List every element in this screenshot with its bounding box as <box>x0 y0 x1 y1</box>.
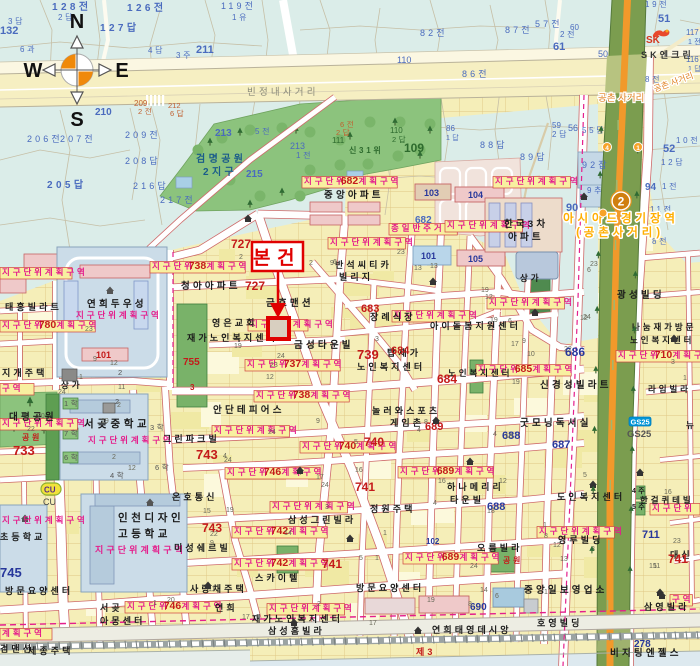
svg-text:타운빌: 타운빌 <box>450 494 484 505</box>
svg-text:12: 12 <box>266 374 274 381</box>
svg-text:고등학교: 고등학교 <box>118 527 171 540</box>
svg-text:3: 3 <box>671 359 675 366</box>
svg-text:하나메리리: 하나메리리 <box>447 481 504 492</box>
svg-text:755: 755 <box>183 357 200 368</box>
svg-text:52: 52 <box>663 143 675 155</box>
svg-text:6학: 6학 <box>64 452 80 462</box>
svg-text:6: 6 <box>587 267 591 274</box>
svg-text:3: 3 <box>375 336 379 343</box>
svg-text:2: 2 <box>317 601 321 608</box>
svg-text:19: 19 <box>481 287 489 294</box>
svg-text:지구단위계획구역: 지구단위계획구역 <box>76 310 162 320</box>
svg-text:노인복지센터: 노인복지센터 <box>630 335 694 345</box>
svg-text:739: 739 <box>357 347 379 362</box>
svg-text:청아아파트: 청아아파트 <box>181 280 241 292</box>
svg-text:11: 11 <box>118 384 125 391</box>
svg-text:서곶: 서곶 <box>100 602 123 613</box>
svg-text:61: 61 <box>553 41 565 53</box>
svg-text:계획구역: 계획구역 <box>460 552 503 562</box>
svg-text:13: 13 <box>560 556 568 563</box>
svg-text:세종주택: 세종주택 <box>28 645 74 656</box>
svg-text:계획구역: 계획구역 <box>207 261 250 271</box>
svg-text:CU: CU <box>43 497 56 507</box>
svg-text:23: 23 <box>673 538 681 545</box>
svg-text:지구단위계획구역: 지구단위계획구역 <box>489 297 575 307</box>
svg-text:재가노인복지센터: 재가노인복지센터 <box>252 613 343 624</box>
svg-text:19: 19 <box>427 597 435 604</box>
svg-text:1: 1 <box>543 522 547 529</box>
svg-text:중앙일보영업소: 중앙일보영업소 <box>524 584 608 596</box>
svg-text:지구단위계획구역: 지구단위계획구역 <box>2 515 88 525</box>
svg-text:18: 18 <box>487 508 495 515</box>
svg-text:S: S <box>70 109 83 131</box>
svg-text:아몽센터: 아몽센터 <box>100 615 146 626</box>
svg-text:740: 740 <box>364 435 384 449</box>
svg-text:12: 12 <box>553 542 561 549</box>
svg-text:인천디자인: 인천디자인 <box>118 511 184 524</box>
svg-text:본건: 본건 <box>253 247 301 269</box>
svg-text:23: 23 <box>270 362 278 369</box>
svg-text:687: 687 <box>552 439 570 451</box>
svg-text:E: E <box>115 60 128 82</box>
svg-text:2전: 2전 <box>138 106 154 116</box>
svg-text:1: 1 <box>375 555 379 562</box>
svg-text:86: 86 <box>446 124 455 133</box>
svg-text:반석씨티카: 반석씨티카 <box>335 259 392 270</box>
svg-text:2: 2 <box>239 254 243 261</box>
svg-text:지구단위계획구역: 지구단위계획구역 <box>250 319 336 329</box>
svg-text:8: 8 <box>424 419 428 426</box>
svg-text:재가노인복지센터: 재가노인복지센터 <box>187 332 278 343</box>
svg-text:82전: 82전 <box>420 28 448 38</box>
svg-text:206전: 206전 <box>27 134 63 144</box>
svg-text:W: W <box>24 60 43 82</box>
svg-text:온호통신: 온호통신 <box>172 491 218 502</box>
svg-text:3학: 3학 <box>150 422 166 432</box>
svg-text:6과: 6과 <box>20 45 37 54</box>
svg-text:20: 20 <box>37 413 45 420</box>
svg-text:한걸퀴테빌: 한걸퀴테빌 <box>640 495 694 505</box>
svg-text:2: 2 <box>118 368 122 377</box>
svg-text:5: 5 <box>583 472 587 479</box>
svg-text:4답: 4답 <box>148 45 165 55</box>
svg-text:대평공원: 대평공원 <box>9 411 57 423</box>
svg-text:1전: 1전 <box>662 181 679 191</box>
svg-text:계획구역: 계획구역 <box>289 526 332 536</box>
svg-text:684: 684 <box>437 372 457 386</box>
svg-text:1전: 1전 <box>688 37 700 46</box>
svg-text:금성타운빌: 금성타운빌 <box>294 339 354 351</box>
svg-text:2답: 2답 <box>336 127 352 137</box>
svg-text:12답: 12답 <box>661 157 685 167</box>
svg-text:CU: CU <box>44 486 56 495</box>
svg-text:17: 17 <box>544 589 552 596</box>
svg-text:2답: 2답 <box>552 129 569 139</box>
svg-text:1: 1 <box>153 600 157 607</box>
svg-text:SK: SK <box>646 35 661 46</box>
svg-text:59: 59 <box>552 121 561 130</box>
svg-text:호영빌딩: 호영빌딩 <box>537 617 583 628</box>
svg-text:24: 24 <box>277 353 285 360</box>
svg-text:16: 16 <box>355 467 363 474</box>
svg-text:682: 682 <box>415 215 432 226</box>
svg-text:2지구: 2지구 <box>203 165 237 178</box>
svg-text:12: 12 <box>485 294 493 301</box>
svg-text:102: 102 <box>426 537 440 546</box>
svg-text:19전: 19전 <box>645 0 669 9</box>
svg-text:205답: 205답 <box>47 179 87 191</box>
svg-text:빈정내사거리: 빈정내사거리 <box>247 87 319 98</box>
svg-text:삼성홈빌라: 삼성홈빌라 <box>268 625 325 636</box>
svg-text:689: 689 <box>442 551 460 563</box>
svg-text:743: 743 <box>196 447 218 462</box>
svg-text:5: 5 <box>359 555 363 562</box>
svg-text:1: 1 <box>79 374 83 381</box>
svg-text:10: 10 <box>527 351 535 358</box>
svg-text:계획구역: 계획구역 <box>455 466 498 476</box>
svg-text:그린파크빌: 그린파크빌 <box>163 433 220 444</box>
svg-text:삼성그린빌라: 삼성그린빌라 <box>288 514 356 525</box>
svg-text:4: 4 <box>417 427 421 434</box>
svg-text:23: 23 <box>590 261 598 268</box>
svg-text:682: 682 <box>341 175 359 187</box>
svg-text:103: 103 <box>424 188 439 198</box>
svg-text:727: 727 <box>245 279 265 293</box>
svg-text:태홍빌라트: 태홍빌라트 <box>5 301 62 312</box>
svg-text:6: 6 <box>508 318 512 325</box>
svg-text:24: 24 <box>58 389 66 396</box>
svg-text:지구단위계획구역: 지구단위계획구역 <box>330 237 416 247</box>
svg-text:22: 22 <box>210 531 218 538</box>
svg-text:16: 16 <box>664 489 672 496</box>
svg-text:상가: 상가 <box>520 273 541 283</box>
svg-text:겸맨션: 겸맨션 <box>0 643 34 654</box>
svg-text:구역: 구역 <box>2 383 23 393</box>
svg-text:50: 50 <box>598 49 608 59</box>
svg-text:3: 3 <box>325 504 329 511</box>
svg-text:검명공원: 검명공원 <box>196 152 246 165</box>
svg-text:24: 24 <box>321 482 329 489</box>
svg-text:15: 15 <box>649 563 657 570</box>
svg-text:도인복지센터: 도인복지센터 <box>557 491 625 502</box>
svg-text:계획구역: 계획구역 <box>533 364 576 374</box>
svg-text:746: 746 <box>264 466 282 478</box>
svg-text:1유: 1유 <box>232 13 249 22</box>
svg-text:노인복지센터: 노인복지센터 <box>357 361 425 372</box>
svg-text:3: 3 <box>190 383 195 392</box>
svg-text:742: 742 <box>271 557 289 569</box>
svg-text:1: 1 <box>683 375 687 382</box>
svg-text:방문요양센터: 방문요양센터 <box>5 585 73 596</box>
svg-text:6학: 6학 <box>155 462 171 472</box>
svg-text:51: 51 <box>658 13 670 25</box>
svg-text:19: 19 <box>490 317 498 324</box>
svg-text:연희태영데시앙: 연희태영데시앙 <box>432 624 512 635</box>
svg-text:서곶중학교: 서곶중학교 <box>84 417 150 430</box>
svg-text:738: 738 <box>293 389 311 401</box>
svg-text:신31위: 신31위 <box>349 145 383 155</box>
svg-text:24: 24 <box>268 429 276 436</box>
svg-text:23: 23 <box>85 326 93 333</box>
svg-text:12: 12 <box>580 315 588 322</box>
svg-text:계획구역: 계획구역 <box>359 176 402 186</box>
svg-text:110: 110 <box>390 126 403 135</box>
svg-text:278: 278 <box>634 639 651 650</box>
svg-text:690: 690 <box>470 602 487 613</box>
svg-text:1: 1 <box>636 145 640 152</box>
svg-text:제3: 제3 <box>416 646 436 657</box>
svg-text:210: 210 <box>95 107 112 118</box>
svg-text:213: 213 <box>290 141 305 151</box>
svg-text:1: 1 <box>383 530 387 537</box>
svg-text:공원: 공원 <box>503 555 523 565</box>
svg-text:17: 17 <box>242 614 250 621</box>
svg-text:88답: 88답 <box>480 139 508 150</box>
svg-text:211: 211 <box>196 44 214 56</box>
svg-text:12: 12 <box>499 478 507 485</box>
svg-text:계획구역: 계획구역 <box>673 350 700 360</box>
svg-text:3주: 3주 <box>176 51 193 60</box>
svg-text:공원: 공원 <box>22 432 42 442</box>
svg-text:22: 22 <box>27 426 35 433</box>
svg-text:17: 17 <box>511 341 519 348</box>
svg-text:683: 683 <box>361 303 379 315</box>
svg-text:126전: 126전 <box>127 1 167 14</box>
svg-text:4: 4 <box>223 453 227 460</box>
svg-text:2: 2 <box>618 195 625 209</box>
svg-text:741: 741 <box>355 480 375 494</box>
svg-text:24: 24 <box>470 563 478 570</box>
svg-text:오름빌라: 오름빌라 <box>477 542 523 553</box>
svg-text:삼영빌라: 삼영빌라 <box>644 601 690 612</box>
svg-text:104: 104 <box>468 190 483 200</box>
svg-text:지구단위계획구역: 지구단위계획구역 <box>272 501 358 511</box>
svg-text:7학: 7학 <box>64 428 80 438</box>
svg-text:2: 2 <box>117 402 121 409</box>
svg-text:710: 710 <box>655 349 673 361</box>
svg-text:6답: 6답 <box>170 108 186 118</box>
svg-text:사랑채주택: 사랑채주택 <box>190 583 247 594</box>
svg-text:9: 9 <box>210 540 214 547</box>
svg-text:지구단위계획구역: 지구단위계획구역 <box>495 176 581 186</box>
svg-text:2: 2 <box>112 454 116 461</box>
svg-text:4: 4 <box>433 500 437 507</box>
svg-text:20: 20 <box>167 597 175 604</box>
svg-text:727: 727 <box>231 237 251 251</box>
svg-text:놀러와스포츠: 놀러와스포츠 <box>372 405 440 416</box>
svg-text:계획구역: 계획구역 <box>311 390 354 400</box>
svg-text:5: 5 <box>354 439 358 446</box>
svg-text:9: 9 <box>522 338 526 345</box>
svg-text:105: 105 <box>468 254 483 264</box>
svg-text:지구단위계획구역: 지구단위계획구역 <box>269 603 355 613</box>
svg-text:56: 56 <box>568 123 578 133</box>
svg-text:(공촌사거리): (공촌사거리) <box>576 225 664 239</box>
svg-text:737: 737 <box>284 358 302 370</box>
svg-text:60: 60 <box>570 23 579 32</box>
svg-text:217전: 217전 <box>160 195 196 205</box>
svg-text:SK엔크린: SK엔크린 <box>641 49 694 60</box>
svg-text:연희: 연희 <box>215 602 238 613</box>
svg-text:9: 9 <box>93 356 97 363</box>
svg-text:127답: 127답 <box>100 22 140 34</box>
svg-text:연희두우성: 연희두우성 <box>87 298 147 310</box>
svg-text:17: 17 <box>316 474 324 481</box>
svg-text:안단테피어스: 안단테피어스 <box>213 404 285 416</box>
svg-text:5전: 5전 <box>255 126 272 136</box>
svg-text:2: 2 <box>309 260 313 267</box>
svg-text:110: 110 <box>397 55 411 65</box>
svg-text:아파트: 아파트 <box>508 231 544 243</box>
svg-text:117: 117 <box>686 28 699 37</box>
svg-text:지구단위계획구역: 지구단위계획구역 <box>88 435 174 445</box>
svg-text:8: 8 <box>468 601 472 608</box>
svg-text:4: 4 <box>493 431 497 438</box>
svg-text:스카이텔: 스카이텔 <box>255 572 301 583</box>
svg-text:지구단위계획구역: 지구단위계획구역 <box>214 425 300 435</box>
svg-text:9추: 9추 <box>587 186 604 195</box>
svg-text:지구단위계획구역: 지구단위계획구역 <box>2 267 88 277</box>
svg-text:741: 741 <box>668 552 688 566</box>
svg-text:3답: 3답 <box>8 16 25 26</box>
svg-text:87전: 87전 <box>505 25 533 35</box>
svg-text:101: 101 <box>96 350 111 360</box>
svg-text:1: 1 <box>665 324 669 331</box>
svg-text:18: 18 <box>505 433 513 440</box>
svg-text:132: 132 <box>0 25 18 37</box>
svg-text:4학: 4학 <box>110 470 126 480</box>
svg-text:영루빌딩: 영루빌딩 <box>558 534 604 545</box>
svg-text:9: 9 <box>330 260 334 267</box>
svg-text:정원주택: 정원주택 <box>370 503 416 514</box>
svg-text:215: 215 <box>246 169 263 180</box>
svg-text:207전: 207전 <box>60 134 96 144</box>
svg-text:1학: 1학 <box>64 398 80 408</box>
svg-text:19: 19 <box>226 507 234 514</box>
svg-text:5주: 5주 <box>632 503 647 511</box>
svg-text:745: 745 <box>0 565 22 580</box>
svg-text:아시아드경기장역: 아시아드경기장역 <box>563 211 679 225</box>
svg-text:19: 19 <box>101 418 109 425</box>
svg-text:9: 9 <box>316 418 320 425</box>
svg-text:N: N <box>70 11 84 33</box>
svg-text:GS25: GS25 <box>627 429 652 440</box>
svg-text:12: 12 <box>110 360 118 367</box>
svg-text:111: 111 <box>332 136 345 145</box>
svg-text:공촌 사거리: 공촌 사거리 <box>598 93 644 104</box>
svg-text:12: 12 <box>128 465 136 472</box>
svg-text:14: 14 <box>284 530 292 537</box>
svg-text:685: 685 <box>515 363 533 375</box>
svg-text:213: 213 <box>215 128 232 139</box>
svg-text:94: 94 <box>645 182 657 193</box>
svg-text:4주: 4주 <box>632 487 647 495</box>
svg-text:노인복지센터: 노인복지센터 <box>448 368 512 378</box>
svg-text:689: 689 <box>437 465 455 477</box>
svg-text:초등학교: 초등학교 <box>0 531 46 542</box>
svg-text:굿모닝독서실: 굿모닝독서실 <box>520 417 592 429</box>
svg-text:영은교회: 영은교회 <box>212 317 258 328</box>
svg-text:733: 733 <box>13 443 35 458</box>
svg-text:208답: 208답 <box>125 155 161 166</box>
svg-text:780: 780 <box>39 319 57 331</box>
svg-text:신경성빌라트: 신경성빌라트 <box>540 379 612 391</box>
svg-text:GS25: GS25 <box>631 418 650 427</box>
svg-text:8: 8 <box>544 533 548 540</box>
svg-text:10전: 10전 <box>676 135 700 145</box>
svg-text:119전: 119전 <box>221 1 256 11</box>
svg-text:계획구역: 계획구역 <box>57 320 100 330</box>
svg-text:계획구역: 계획구역 <box>302 359 345 369</box>
svg-text:92잡: 92잡 <box>582 159 610 170</box>
svg-text:19: 19 <box>512 379 520 386</box>
svg-text:741: 741 <box>322 557 342 571</box>
svg-text:광성빌딩: 광성빌딩 <box>617 289 665 301</box>
svg-text:89답: 89답 <box>520 151 548 162</box>
svg-text:미성쉐르빌: 미성쉐르빌 <box>174 542 231 553</box>
svg-text:57전: 57전 <box>535 19 563 29</box>
svg-text:빌리지: 빌리지 <box>339 271 373 282</box>
svg-text:101: 101 <box>421 251 436 261</box>
svg-text:13: 13 <box>414 265 422 272</box>
svg-text:14: 14 <box>480 587 488 594</box>
svg-text:한국3차: 한국3차 <box>504 218 548 230</box>
svg-text:뉴: 뉴 <box>686 420 697 430</box>
svg-text:2답: 2답 <box>392 134 408 144</box>
svg-text:라임빌라: 라임빌라 <box>648 384 691 394</box>
svg-text:1전: 1전 <box>296 150 313 160</box>
svg-text:684: 684 <box>391 345 410 357</box>
svg-text:711: 711 <box>642 529 660 541</box>
svg-text:13: 13 <box>430 263 438 270</box>
svg-text:86전: 86전 <box>462 69 490 79</box>
svg-text:계획구역: 계획구역 <box>2 628 45 638</box>
svg-text:1답: 1답 <box>446 133 461 142</box>
svg-text:22: 22 <box>564 346 572 353</box>
svg-text:23: 23 <box>397 249 405 256</box>
svg-text:16: 16 <box>438 478 446 485</box>
svg-text:6: 6 <box>495 593 499 600</box>
svg-text:738: 738 <box>189 260 207 272</box>
svg-text:지구단위계획구역: 지구단위계획구역 <box>95 544 186 555</box>
svg-text:4: 4 <box>605 145 609 152</box>
svg-text:17: 17 <box>369 620 377 627</box>
svg-text:15: 15 <box>203 508 211 515</box>
svg-text:방문요양센터: 방문요양센터 <box>356 582 424 593</box>
svg-text:19: 19 <box>234 343 242 350</box>
svg-text:지개주택: 지개주택 <box>2 367 48 378</box>
svg-text:중앙아파트: 중앙아파트 <box>324 189 384 201</box>
svg-text:216답: 216답 <box>133 180 169 191</box>
svg-text:209전: 209전 <box>125 130 161 140</box>
